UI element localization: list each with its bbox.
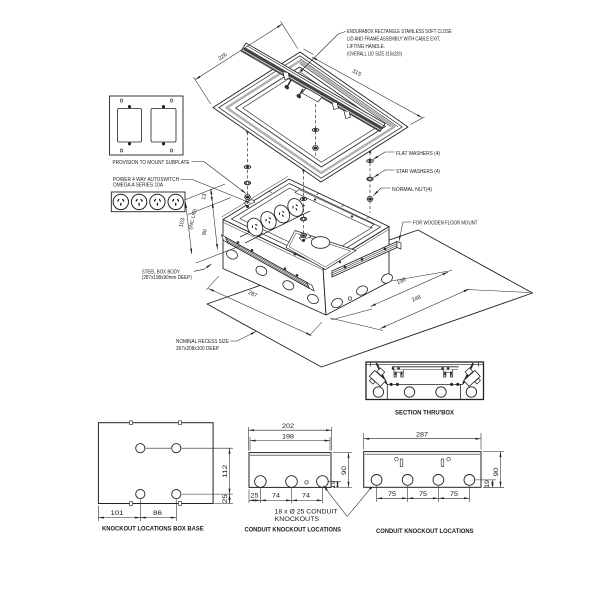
svg-text:13: 13	[201, 193, 208, 200]
svg-text:287: 287	[416, 431, 428, 438]
svg-text:18 x Ø 25 CONDUIT: 18 x Ø 25 CONDUIT	[275, 509, 338, 516]
svg-text:101: 101	[111, 510, 124, 517]
svg-text:112: 112	[222, 464, 229, 477]
svg-text:90: 90	[493, 467, 500, 476]
svg-text:74: 74	[302, 493, 310, 500]
svg-text:90: 90	[341, 466, 348, 475]
svg-text:19: 19	[330, 480, 337, 488]
svg-text:NOMINAL RECESS SIZE: NOMINAL RECESS SIZE	[176, 339, 230, 345]
svg-text:86: 86	[153, 510, 162, 517]
svg-text:75: 75	[388, 491, 396, 498]
svg-text:SECTION THRU'BOX: SECTION THRU'BOX	[395, 410, 454, 417]
svg-text:198: 198	[282, 433, 294, 440]
svg-text:75: 75	[419, 491, 427, 498]
svg-text:(287x198x90mm DEEP): (287x198x90mm DEEP)	[142, 275, 192, 281]
svg-text:25: 25	[251, 493, 259, 500]
svg-text:LID AND FRAME ASSEMBLY WITH CA: LID AND FRAME ASSEMBLY WITH CABLE EXIT,	[347, 37, 440, 43]
svg-text:25: 25	[222, 494, 229, 503]
svg-text:KNOCKOUTS: KNOCKOUTS	[275, 516, 320, 523]
svg-text:NORMAL NUT(4): NORMAL NUT(4)	[392, 187, 432, 193]
svg-text:202: 202	[282, 423, 294, 430]
svg-text:PROVISION TO MOUNT SUBPLATE: PROVISION TO MOUNT SUBPLATE	[113, 160, 191, 166]
svg-text:90: 90	[202, 229, 209, 236]
svg-text:FOR WOODEN FLOOR MOUNT: FOR WOODEN FLOOR MOUNT	[413, 221, 478, 227]
svg-text:LIFTING HANDLE.: LIFTING HANDLE.	[347, 44, 385, 50]
svg-text:OMEGA A SERIES 10A: OMEGA A SERIES 10A	[113, 182, 164, 188]
svg-text:74: 74	[272, 493, 280, 500]
svg-text:CONDUIT KNOCKOUT LOCATIONS: CONDUIT KNOCKOUT LOCATIONS	[245, 527, 342, 534]
svg-text:19: 19	[484, 480, 491, 488]
svg-text:(OVERALL LID SIZE 315x226): (OVERALL LID SIZE 315x226)	[347, 52, 402, 58]
svg-text:75: 75	[450, 491, 458, 498]
svg-text:STAR WASHERS (4): STAR WASHERS (4)	[396, 169, 440, 175]
svg-text:267x208x100 DEEP: 267x208x100 DEEP	[176, 346, 220, 352]
svg-text:CONDUIT KNOCKOUT LOCATIONS: CONDUIT KNOCKOUT LOCATIONS	[376, 528, 474, 535]
svg-text:ENDURABOX RECTANGLE STAINLESS: ENDURABOX RECTANGLE STAINLESS SOFT CLOSE	[347, 29, 452, 35]
svg-text:KNOCKOUT LOCATIONS BOX BASE: KNOCKOUT LOCATIONS BOX BASE	[102, 526, 204, 533]
svg-text:FLAT WASHERS (4): FLAT WASHERS (4)	[396, 151, 440, 157]
